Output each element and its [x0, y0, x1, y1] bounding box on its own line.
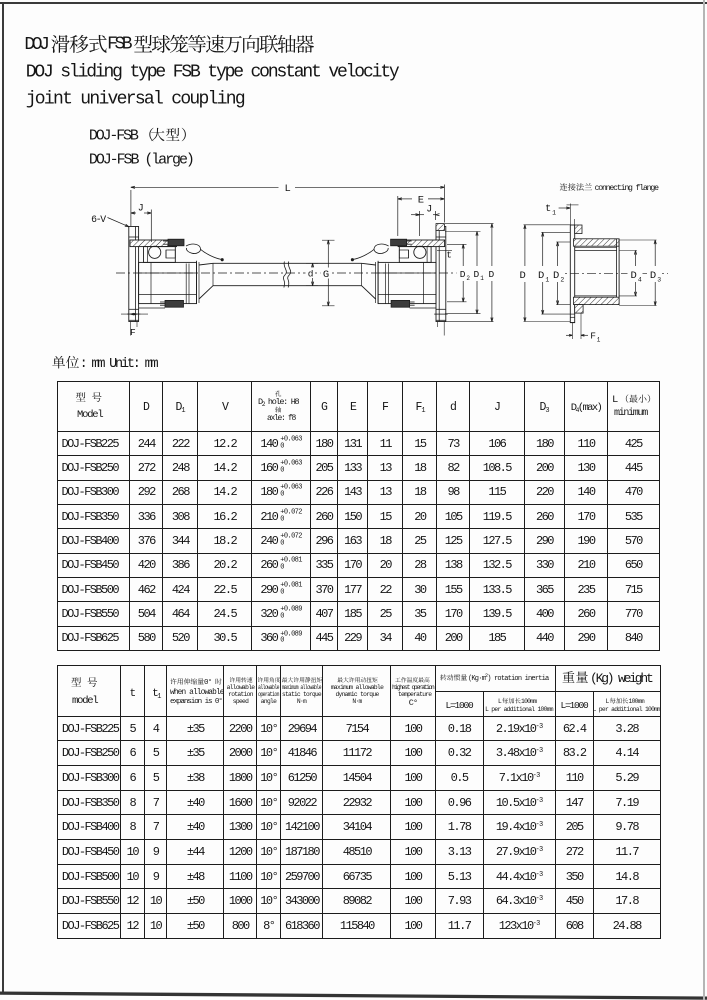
svg-text:joint universal coupling: joint universal coupling: [26, 90, 246, 110]
svg-text:C°: C°: [409, 698, 418, 708]
svg-text:t1: t1: [152, 688, 161, 701]
svg-text:6-V: 6-V: [91, 214, 106, 225]
svg-text:expansion is 0°: expansion is 0°: [170, 697, 222, 706]
svg-text:J: J: [426, 205, 431, 216]
svg-text:t: t: [130, 688, 136, 700]
svg-text:maximum allowable: maximum allowable: [282, 684, 322, 691]
svg-text:G: G: [323, 269, 329, 281]
svg-text:L: L: [498, 698, 502, 705]
svg-text:dynamic torque: dynamic torque: [335, 691, 379, 698]
svg-text:1: 1: [480, 275, 484, 282]
svg-text:model: model: [72, 695, 98, 707]
svg-text:connecting flange: connecting flange: [595, 183, 660, 193]
svg-text:V: V: [222, 401, 229, 414]
svg-text:1: 1: [552, 210, 556, 217]
svg-text:L: L: [284, 183, 290, 195]
svg-text:D: D: [519, 270, 525, 282]
svg-text:DOJ-FSB (large): DOJ-FSB (large): [89, 152, 195, 169]
svg-text:minimum: minimum: [614, 407, 648, 419]
svg-text:F: F: [130, 327, 136, 338]
svg-text:rotation: rotation: [228, 691, 254, 698]
svg-text:(Kg·m2) rotation inertia: (Kg·m2) rotation inertia: [468, 673, 549, 683]
svg-text:axle: f8: axle: f8: [267, 414, 297, 423]
svg-text:100mm: 100mm: [629, 698, 645, 705]
svg-text:L per additional 100mm: L per additional 100mm: [593, 706, 660, 713]
svg-text:angle: angle: [261, 698, 277, 705]
svg-text:E: E: [350, 401, 357, 414]
svg-text:D3: D3: [540, 401, 550, 415]
svg-text:E: E: [418, 195, 424, 207]
svg-text:DOJ: DOJ: [24, 35, 50, 55]
svg-text:DOJ sliding type FSB type cons: DOJ sliding type FSB type constant veloc…: [26, 62, 400, 82]
svg-text:highest operation: highest operation: [392, 684, 435, 691]
svg-text:N·m: N·m: [352, 698, 362, 705]
svg-text:N·m: N·m: [297, 698, 307, 705]
svg-text:100mm: 100mm: [521, 698, 537, 705]
svg-text:: mm Unit: mm: : mm Unit: mm: [80, 357, 159, 372]
svg-text:D: D: [630, 270, 636, 282]
svg-text:operation: operation: [258, 691, 280, 698]
svg-text:D: D: [553, 270, 559, 282]
svg-text:F1: F1: [415, 401, 425, 415]
svg-text:when allowable: when allowable: [170, 689, 224, 697]
svg-text:Model: Model: [77, 409, 103, 421]
svg-text:G: G: [321, 401, 328, 414]
svg-text:(Kg) weight: (Kg) weight: [590, 671, 653, 686]
svg-text:allowable: allowable: [226, 684, 255, 691]
svg-text:D4(max): D4(max): [571, 402, 602, 414]
svg-text:D: D: [143, 401, 150, 414]
svg-text:d: d: [450, 401, 456, 414]
svg-text:t: t: [545, 203, 551, 215]
svg-text:J: J: [494, 401, 500, 414]
svg-text:L=1000: L=1000: [446, 700, 475, 711]
svg-text:J: J: [138, 204, 143, 215]
svg-text:L per additional 100mm: L per additional 100mm: [485, 706, 554, 713]
svg-text:F: F: [382, 401, 389, 414]
svg-text:FSB: FSB: [107, 35, 133, 55]
svg-text:L: L: [606, 698, 610, 705]
svg-text:0°: 0°: [204, 678, 212, 687]
svg-text:1: 1: [597, 337, 601, 344]
svg-text:temperature: temperature: [398, 691, 432, 698]
svg-text:static torque: static torque: [282, 691, 322, 698]
svg-text:D: D: [538, 270, 544, 282]
svg-text:L=1000: L=1000: [561, 700, 590, 711]
svg-text:D2 hole: H8: D2 hole: H8: [258, 397, 300, 408]
svg-text:D1: D1: [176, 401, 186, 415]
svg-text:d: d: [308, 268, 313, 279]
svg-text:2: 2: [466, 275, 470, 282]
svg-text:t: t: [446, 250, 451, 261]
svg-text:speed: speed: [233, 698, 249, 705]
svg-text:D: D: [650, 270, 656, 282]
svg-text:DOJ-FSB: DOJ-FSB: [89, 127, 139, 144]
svg-text:L: L: [612, 394, 618, 406]
svg-text:allowable: allowable: [258, 684, 280, 691]
svg-text:maximum allowable: maximum allowable: [331, 684, 384, 691]
svg-text:F: F: [590, 331, 596, 342]
